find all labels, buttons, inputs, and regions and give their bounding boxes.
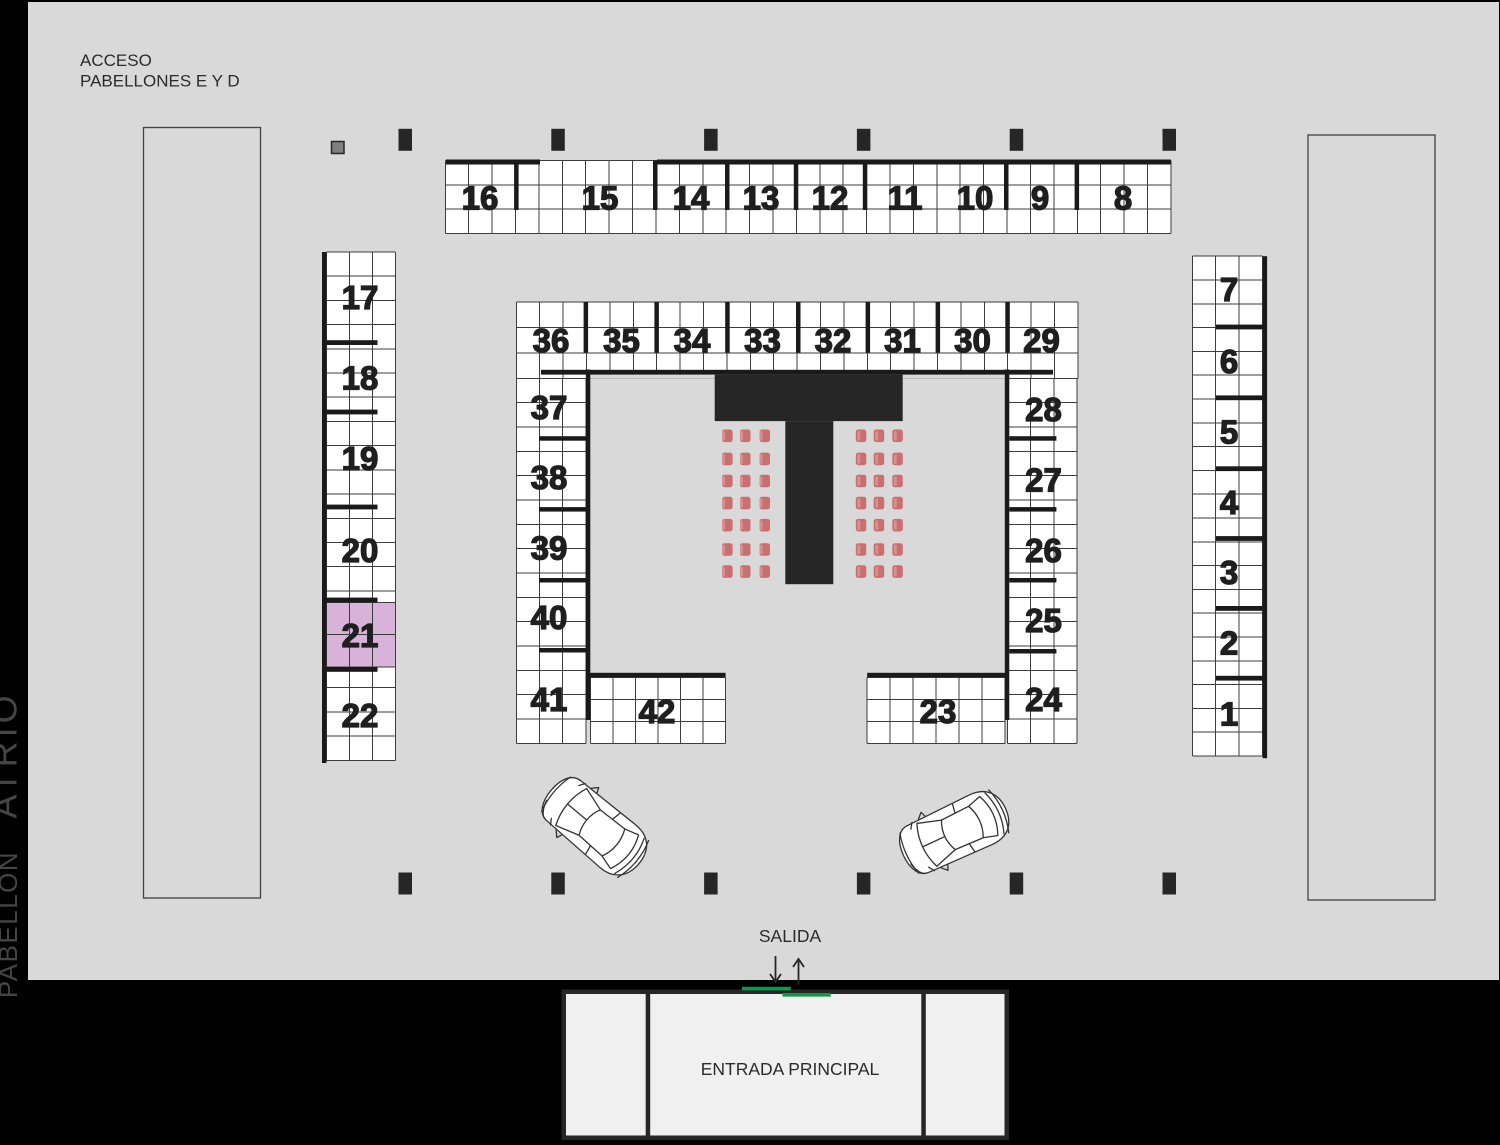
svg-text:ATRIO: ATRIO: [0, 691, 25, 818]
svg-text:3: 3: [1220, 554, 1238, 591]
svg-text:37: 37: [531, 389, 568, 426]
svg-text:26: 26: [1025, 532, 1062, 569]
svg-text:32: 32: [815, 322, 852, 359]
svg-text:4: 4: [1220, 484, 1239, 521]
svg-text:PABELLON: PABELLON: [0, 851, 23, 998]
svg-text:24: 24: [1025, 681, 1062, 718]
svg-text:31: 31: [884, 322, 921, 359]
svg-text:18: 18: [342, 359, 379, 396]
svg-text:ACCESO: ACCESO: [80, 51, 152, 70]
svg-text:21: 21: [342, 617, 379, 654]
svg-text:22: 22: [342, 697, 379, 734]
svg-text:35: 35: [603, 322, 640, 359]
svg-text:29: 29: [1023, 322, 1060, 359]
svg-text:36: 36: [533, 322, 570, 359]
svg-text:10: 10: [957, 179, 994, 216]
svg-text:1: 1: [1220, 696, 1238, 733]
svg-text:23: 23: [920, 693, 957, 730]
svg-text:25: 25: [1025, 602, 1062, 639]
svg-text:14: 14: [673, 179, 710, 216]
svg-text:19: 19: [342, 440, 379, 477]
svg-text:40: 40: [531, 599, 568, 636]
svg-text:20: 20: [342, 532, 379, 569]
svg-text:11: 11: [888, 179, 923, 216]
svg-text:PABELLONES E Y D: PABELLONES E Y D: [80, 72, 240, 91]
svg-text:12: 12: [812, 179, 849, 216]
svg-text:8: 8: [1114, 179, 1132, 216]
svg-text:6: 6: [1220, 343, 1238, 380]
svg-text:13: 13: [743, 179, 780, 216]
svg-text:2: 2: [1220, 624, 1238, 661]
svg-text:28: 28: [1025, 391, 1062, 428]
svg-text:15: 15: [582, 179, 619, 216]
svg-text:38: 38: [531, 459, 568, 496]
svg-text:30: 30: [954, 322, 991, 359]
svg-text:5: 5: [1220, 414, 1238, 451]
svg-text:SALIDA: SALIDA: [759, 926, 822, 946]
svg-text:41: 41: [531, 681, 568, 718]
svg-text:42: 42: [639, 693, 676, 730]
svg-text:ENTRADA PRINCIPAL: ENTRADA PRINCIPAL: [701, 1059, 880, 1079]
svg-text:7: 7: [1220, 271, 1238, 308]
svg-text:34: 34: [674, 322, 711, 359]
svg-text:33: 33: [744, 322, 781, 359]
svg-text:17: 17: [342, 279, 379, 316]
svg-text:9: 9: [1031, 179, 1049, 216]
svg-text:16: 16: [462, 179, 499, 216]
svg-text:39: 39: [531, 529, 568, 566]
svg-text:27: 27: [1025, 461, 1062, 498]
